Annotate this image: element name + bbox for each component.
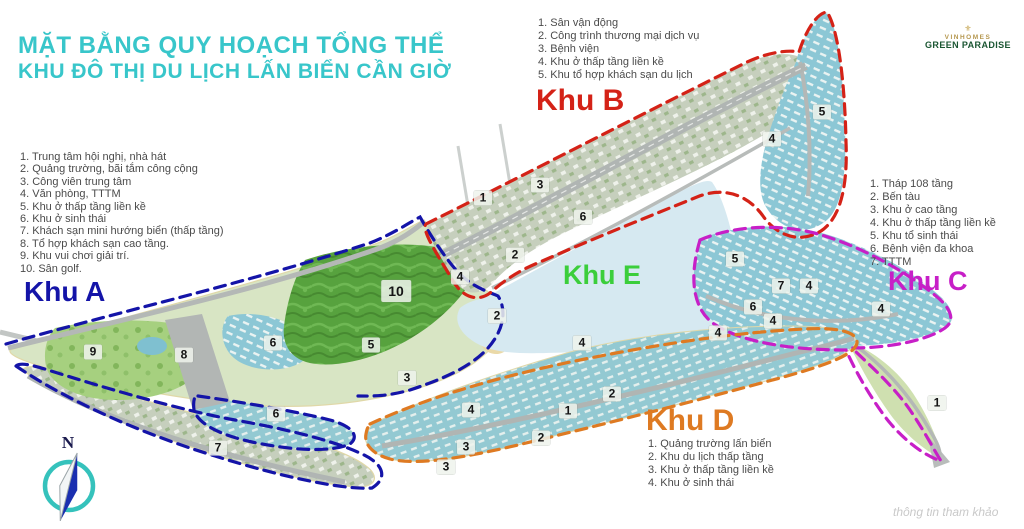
legend-list-khu-b: 1. Sân vận động2. Công trình thương mại … <box>538 17 699 82</box>
zone-label-khu-d: Khu D <box>646 404 734 438</box>
compass-north-label: N <box>62 433 75 452</box>
zone-marker-a-4: 4 <box>451 270 469 285</box>
legend-item: 1. Quảng trường lấn biển <box>648 438 774 451</box>
legend-item: 5. Khu tổ hợp khách sạn du lịch <box>538 69 699 82</box>
legend-item: 7. Khách sạn mini hướng biển (thấp tầng) <box>20 225 224 237</box>
legend-list-khu-a: 1. Trung tâm hội nghị, nhà hát2. Quảng t… <box>20 151 224 275</box>
zone-marker-c-4: 4 <box>709 326 727 341</box>
legend-item: 4. Khu ở thấp tầng liền kề <box>538 56 699 69</box>
legend-item: 1. Sân vận động <box>538 17 699 30</box>
zone-marker-c-5: 5 <box>726 252 744 267</box>
legend-item: 2. Công trình thương mại dịch vụ <box>538 30 699 43</box>
zone-label-khu-a: Khu A <box>24 276 105 308</box>
zone-marker-d-3: 3 <box>457 440 475 455</box>
zone-marker-d-4: 4 <box>573 336 591 351</box>
legend-item: 4. Khu ở sinh thái <box>648 477 774 490</box>
legend-list-khu-c: 1. Tháp 108 tầng2. Bến tàu3. Khu ở cao t… <box>870 178 996 269</box>
zone-marker-a-2: 2 <box>506 248 524 263</box>
zone-marker-b-3: 3 <box>531 178 549 193</box>
legend-item: 5. Khu tổ sinh thái <box>870 230 996 243</box>
legend-item: 3. Khu ở cao tầng <box>870 204 996 217</box>
legend-item: 3. Công viên trung tâm <box>20 176 224 188</box>
masterplan-page: 98106675322413645576444414214233 MẶT BẰN… <box>0 0 1024 529</box>
zone-marker-a-7: 7 <box>209 441 227 456</box>
legend-list-khu-d: 1. Quảng trường lấn biển2. Khu du lịch t… <box>648 438 774 490</box>
zone-marker-c-7: 7 <box>772 279 790 294</box>
zone-marker-a-9: 9 <box>84 345 102 360</box>
legend-item: 2. Quảng trường, bãi tắm công cộng <box>20 163 224 175</box>
watermark-note: thông tin tham khảo <box>893 505 998 519</box>
zone-marker-b-4: 4 <box>763 132 781 147</box>
legend-item: 4. Văn phòng, TTTM <box>20 188 224 200</box>
legend-item: 4. Khu ở thấp tầng liền kề <box>870 217 996 230</box>
zone-marker-c-4: 4 <box>764 314 782 329</box>
gold-crest-icon: ⚜ <box>920 25 1016 34</box>
zone-marker-b-6: 6 <box>574 210 592 225</box>
legend-item: 3. Bệnh viện <box>538 43 699 56</box>
developer-logo: ⚜ VINHOMES GREEN PARADISE <box>920 25 1016 51</box>
zone-marker-c-6: 6 <box>744 300 762 315</box>
legend-item: 6. Bệnh viện đa khoa <box>870 243 996 256</box>
legend-item: 2. Khu du lịch thấp tầng <box>648 451 774 464</box>
logo-project-name: GREEN PARADISE <box>920 41 1016 51</box>
zone-marker-b-1: 1 <box>474 191 492 206</box>
legend-item: 9. Khu vui chơi giải trí. <box>20 250 224 262</box>
zone-marker-a-8: 8 <box>175 348 193 363</box>
zone-marker-a-10: 10 <box>381 280 411 302</box>
zone-marker-c-1: 1 <box>928 396 946 411</box>
legend-item: 6. Khu ở sinh thái <box>20 213 224 225</box>
zone-label-khu-b: Khu B <box>536 84 624 118</box>
legend-item: 8. Tổ hợp khách sạn cao tầng. <box>20 238 224 250</box>
zone-label-khu-e: Khu E <box>563 260 641 291</box>
zone-label-khu-c: Khu C <box>888 266 967 297</box>
zone-marker-d-3: 3 <box>437 460 455 475</box>
compass-rose: N <box>28 430 112 526</box>
zone-marker-a-5: 5 <box>362 338 380 353</box>
zone-marker-b-5: 5 <box>813 105 831 120</box>
legend-item: 1. Tháp 108 tầng <box>870 178 996 191</box>
page-title-line1: MẶT BẰNG QUY HOẠCH TỔNG THỂ <box>18 32 444 60</box>
zone-marker-d-2: 2 <box>532 431 550 446</box>
legend-item: 3. Khu ở thấp tầng liền kề <box>648 464 774 477</box>
zone-marker-d-2: 2 <box>603 387 621 402</box>
park-pond <box>137 337 167 355</box>
zone-marker-a-3: 3 <box>398 371 416 386</box>
zone-marker-c-4: 4 <box>872 302 890 317</box>
legend-item: 1. Trung tâm hội nghị, nhà hát <box>20 151 224 163</box>
legend-item: 2. Bến tàu <box>870 191 996 204</box>
zone-marker-c-4: 4 <box>800 279 818 294</box>
zone-marker-a-6: 6 <box>267 407 285 422</box>
zone-marker-d-1: 1 <box>559 404 577 419</box>
zone-marker-a-6: 6 <box>264 336 282 351</box>
legend-item: 10. Sân golf. <box>20 263 224 275</box>
legend-item: 5. Khu ở thấp tầng liền kề <box>20 201 224 213</box>
zone-marker-d-4: 4 <box>462 403 480 418</box>
page-title-line2: KHU ĐÔ THỊ DU LỊCH LẤN BIỂN CẦN GIỜ <box>18 60 451 84</box>
zone-marker-a-2: 2 <box>488 309 506 324</box>
